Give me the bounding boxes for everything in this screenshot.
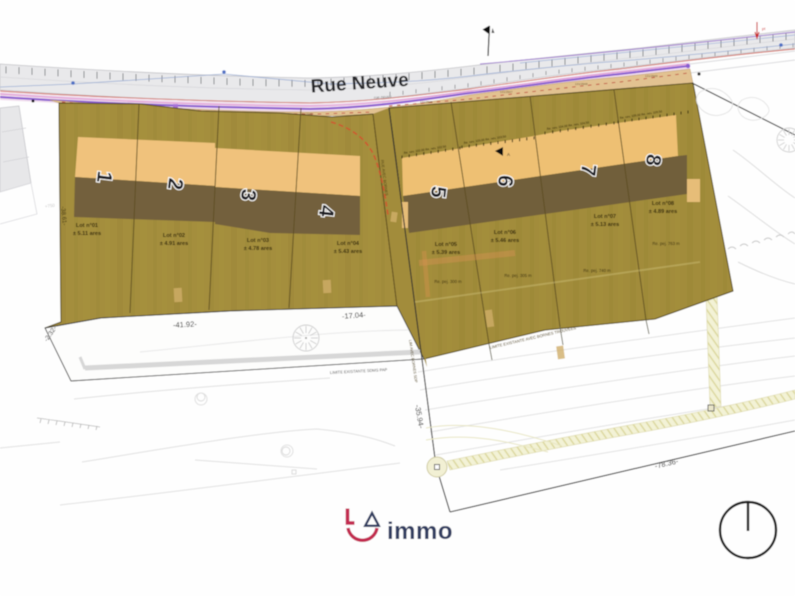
svg-text:Lot n°03: Lot n°03 (247, 238, 269, 244)
svg-text:131/2949: 131/2949 (645, 74, 658, 78)
svg-text:± 5.11 ares: ± 5.11 ares (73, 231, 101, 237)
svg-text:131/2946: 131/2946 (420, 100, 433, 104)
svg-text:Lot n°01: Lot n°01 (76, 223, 98, 229)
svg-text:Lot n°04: Lot n°04 (337, 241, 360, 247)
svg-text:-17.04-: -17.04- (342, 310, 367, 321)
svg-text:± 4.89 ares: ± 4.89 ares (649, 209, 678, 215)
svg-text:± 4.78 ares: ± 4.78 ares (244, 246, 273, 252)
svg-text:Lot n°05: Lot n°05 (435, 242, 457, 248)
svg-text:± 4.91 ares: ± 4.91 ares (160, 241, 189, 247)
svg-text:A: A (507, 152, 510, 157)
svg-text:-41.92-: -41.92- (173, 319, 198, 329)
svg-text:Lot n°02: Lot n°02 (163, 233, 185, 239)
svg-text:Re. pej. 740 m: Re. pej. 740 m (583, 268, 611, 273)
svg-text:± 5.39 ares: ± 5.39 ares (432, 250, 461, 256)
svg-text:± 5.43 ares: ± 5.43 ares (334, 249, 363, 255)
svg-text:Lot n°06: Lot n°06 (494, 230, 516, 236)
svg-text:immo: immo (387, 518, 453, 545)
svg-text:Re. pej. 300 m: Re. pej. 300 m (434, 279, 462, 284)
svg-text:131/2948: 131/2948 (575, 82, 588, 86)
svg-text:± 5.13 ares: ± 5.13 ares (591, 222, 620, 228)
svg-text:Lot n°07: Lot n°07 (594, 214, 616, 220)
svg-text:Lot n°08: Lot n°08 (652, 201, 674, 207)
svg-text:Re. pej. 763 m: Re. pej. 763 m (652, 241, 680, 246)
svg-text:131/2947: 131/2947 (500, 90, 513, 94)
svg-text:Re. pej. 305 m: Re. pej. 305 m (504, 273, 532, 278)
svg-text:± 5.46 ares: ± 5.46 ares (491, 238, 520, 244)
